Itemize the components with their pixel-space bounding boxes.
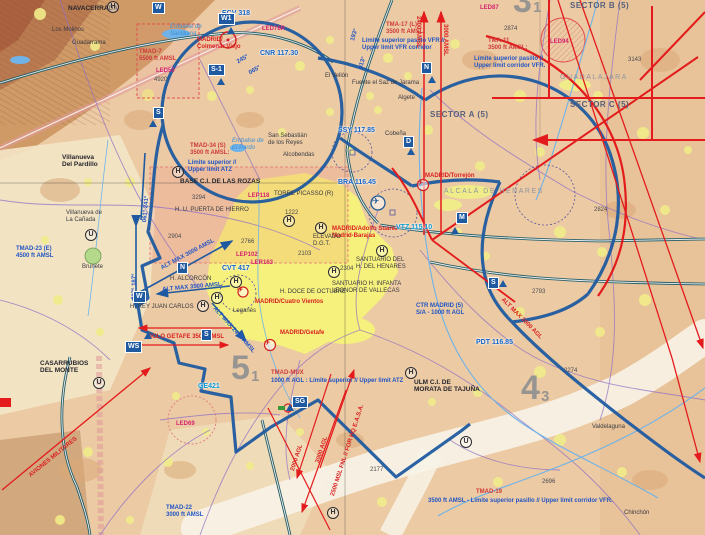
heliport-marker: H — [327, 507, 339, 519]
label-2400-amsl: 2400 AMSL — [414, 16, 421, 48]
label-solo-getafe: SOLO GETAFE 3500 AMSL — [148, 334, 224, 341]
label-tmad-mux-limits: 1000 ft AGL : Límite superior // Upper l… — [271, 378, 403, 385]
point-box-n-alcorcon: N — [177, 262, 188, 274]
label-elev-2696: 2696 — [542, 479, 555, 486]
label-aviones-militares: AVIONES MILITARES — [28, 436, 79, 479]
label-sector-b: SECTOR B (5) — [570, 2, 629, 11]
label-tma11: TMA-11 3500 ft AMSL: — [488, 38, 527, 51]
label-tmad-mux: TMAD-MUX — [271, 370, 304, 377]
point-box-w1: W1 — [218, 13, 235, 25]
heliport-marker: H — [197, 300, 209, 312]
label-leganes: Leganés — [233, 308, 256, 315]
label-led50: LED50 — [156, 68, 175, 75]
heliport-marker: H — [376, 245, 388, 257]
label-elev-3143: 3143 — [628, 57, 641, 64]
label-rey-juan-carlos: H. REY JUAN CARLOS — [130, 304, 194, 311]
label-el-vellon: El Vellón — [325, 73, 348, 80]
point-box-s1: S-1 — [208, 64, 225, 76]
label-casarrubios: CASARRUBIOS DEL MONTE — [40, 360, 88, 375]
label-algete: Algete — [398, 95, 415, 102]
label-ge421: GE421 — [198, 383, 220, 391]
point-box-m: M — [456, 212, 468, 224]
label-ctr-madrid: CTR MADRID (5) S/A - 1000 ft AGL — [416, 303, 464, 316]
label-elev-2824: 2824 — [594, 207, 607, 214]
label-tma11-limits: Límite superior pasillo // Upper limit c… — [474, 56, 545, 69]
label-torre-picasso: TORRE PICASSO (R) — [274, 191, 333, 198]
heliport-marker: H — [211, 292, 223, 304]
point-box-n-top: N — [421, 62, 432, 74]
label-vtz-freq: VTZ 115.10 — [396, 224, 432, 232]
label-tma17-limits: Límite superior pasillo VFR // Upper lim… — [362, 38, 445, 51]
chart-labels: NAVACERRADALos MolinosGuadarramaEmbalse … — [0, 0, 705, 535]
label-led78r: LED78R — [262, 26, 285, 33]
label-2500-msl: 2500 MSL FNL // FOR HQ E.A.S.A. — [330, 404, 366, 497]
label-santuario-henares: SANTUARIO DEL H. DEL HENARES — [356, 257, 406, 270]
label-barajas: MADRID/Adolfo Suárez Madrid-Barajas — [332, 226, 398, 239]
point-box-d: D — [403, 136, 414, 148]
vfr-point-triangle — [149, 120, 157, 127]
point-box-w-top: W — [152, 2, 165, 14]
vfr-point-triangle — [428, 76, 436, 83]
label-lep102: LEP102 — [236, 252, 258, 259]
vfr-point-triangle — [407, 148, 415, 155]
point-box-s-getafe: S — [201, 329, 212, 341]
point-box-s-east: S — [488, 277, 499, 289]
label-brg-245: 245° — [236, 54, 250, 66]
vfr-point-triangle — [144, 332, 152, 339]
vfr-point-triangle — [227, 27, 235, 34]
label-tmad23: TMAD-23 (E) 4500 ft AMSL — [16, 246, 53, 259]
vfr-point-triangle — [217, 78, 225, 85]
chart-number-5: 5 — [231, 349, 250, 387]
label-alcala: ALCALÁ DE HENARES — [444, 188, 544, 196]
vfr-point-triangle — [499, 280, 507, 287]
label-colmenar-viejo: MADRID/ Colmenar Viejo — [197, 37, 241, 50]
label-elev-2274: 2274 — [564, 368, 577, 375]
label-3000-agl: 3000 AGL — [315, 436, 330, 464]
label-vva-pardillo: Villanueva Del Pardillo — [62, 154, 98, 169]
label-chinchon: Chinchón — [624, 510, 649, 517]
label-alcobendas: Alcobendas — [283, 152, 314, 159]
label-elev-4920: 4920 — [154, 77, 167, 84]
ulm-marker: U — [93, 377, 105, 389]
point-box-s-west: S — [153, 107, 164, 119]
label-guadarrama: Guadarrama — [72, 40, 106, 47]
heliport-marker: H — [405, 367, 417, 379]
label-tmad19-limits: 3500 ft AMSL - Límite superior pasillo /… — [428, 498, 613, 505]
label-valdelaguna: Valdelaguna — [592, 424, 625, 431]
label-brg-013: 013° — [358, 56, 368, 70]
label-led94: LED94 — [550, 39, 569, 46]
ulm-marker: U — [85, 229, 97, 241]
label-embalse-santillana: Embalse de Santillana — [170, 24, 202, 37]
airport-icon-cuatro-vientos: ✈ — [237, 286, 244, 295]
label-sector-c: SECTOR C (5) — [570, 101, 629, 110]
label-tmad7: TMAD-7 5500 ft AMSL — [139, 49, 176, 62]
label-elev-2904: 2904 — [168, 234, 181, 241]
label-elev-2304: 2304 — [340, 266, 353, 273]
label-ssy-freq: SSY 117.85 — [338, 127, 375, 135]
label-led87: LED87 — [480, 5, 499, 12]
label-led69: LED69 — [176, 421, 195, 428]
airport-icon-barajas: ✈ — [372, 196, 380, 206]
label-torrejon: MADRID/Torrejón — [425, 173, 475, 180]
label-tmad34-limits: Límite superior // Upper limit ATZ — [188, 160, 236, 173]
label-elev-2793: 2793 — [532, 289, 545, 296]
label-doce-octubre: H. DOCE DE OCTUBRE — [280, 289, 346, 296]
point-box-sg: SG — [292, 396, 308, 408]
label-elevado-dgt: ELEVADO D.G.T. — [313, 234, 341, 247]
label-los-molinos: Los Molinos — [52, 27, 84, 34]
label-embalse-pardo: Embalse de El Pardo — [232, 138, 264, 151]
label-brunete: Brunete — [82, 264, 103, 271]
label-brg-065: 065° — [248, 65, 262, 77]
chart-number-4: 4 — [521, 369, 540, 407]
label-san-sebastian: San Sebastián de los Reyes — [268, 133, 307, 146]
point-box-ws: WS — [125, 341, 142, 353]
label-cvt-freq: CVT 417 — [222, 265, 250, 273]
chart-number-3: 3 — [513, 0, 532, 20]
vfr-aeronautical-chart-madrid: NAVACERRADALos MolinosGuadarramaEmbalse … — [0, 0, 705, 535]
airport-icon-getafe: ✈ — [264, 339, 271, 348]
label-bra-freq: BRA 116.45 — [338, 179, 376, 187]
label-elev-3294: 3294 — [192, 195, 205, 202]
label-guadalajara: GUADALAJARA — [560, 74, 628, 82]
label-elev-2103: 2103 — [298, 251, 311, 258]
label-2000-agl: 2000 AGL — [290, 444, 305, 472]
heliport-marker: H — [172, 166, 184, 178]
label-3000-amsl: 3000 AMSL — [441, 24, 448, 56]
label-brg-061-241: 061° 241° — [142, 196, 151, 223]
label-cuatro-vientos: MADRID/Cuatro Vientos — [255, 299, 323, 306]
label-brg-193: 193° — [350, 28, 360, 42]
label-pdt-freq: PDT 116.85 — [476, 339, 513, 347]
chart-number-5-sub: 1 — [251, 369, 259, 386]
label-fuente-saz: Fuente el Saz de Jarama — [352, 80, 419, 87]
label-cnr-freq: CNR 117.30 — [260, 50, 298, 58]
heliport-marker: H — [315, 222, 327, 234]
label-base-rozas: BASE C.I. DE LAS ROZAS — [180, 178, 260, 185]
heliport-marker: H — [107, 1, 119, 13]
chart-number-4-sub: 3 — [541, 389, 549, 406]
label-tmad22: TMAD-22 3000 ft AMSL — [166, 505, 203, 518]
label-elev-2766: 2766 — [241, 239, 254, 246]
point-box-w-alcorcon: W — [133, 291, 146, 303]
label-elev-2874: 2874 — [504, 26, 517, 33]
label-ler163: LER163 — [251, 260, 273, 267]
label-alt-max-1000: ALT MAX 1000 AGL — [499, 297, 543, 341]
ulm-marker: U — [460, 436, 472, 448]
label-getafe: MADRID/Getafe — [280, 330, 324, 337]
airport-icon-torrejon: ✈ — [417, 179, 424, 188]
label-h-alcorcon: H. ALCORCÓN — [170, 276, 211, 283]
vfr-point-triangle — [286, 404, 294, 411]
label-vva-canada: Villanueva de La Cañada — [66, 210, 102, 223]
heliport-marker: H — [328, 266, 340, 278]
chart-number-3-sub: 1 — [533, 0, 541, 17]
label-ulm-morata: ULM C.I. DE MORATA DE TAJUÑA — [414, 379, 480, 394]
label-lep118: LEP118 — [248, 193, 269, 200]
label-sector-a: SECTOR A (5) — [430, 111, 489, 120]
vfr-point-triangle — [451, 227, 459, 234]
label-tmad34: TMAD-34 (S) 3500 ft AMSL: — [190, 143, 229, 156]
label-puerta-hierro: H. U. PUERTA DE HIERRO — [175, 207, 249, 214]
label-tmad19: TMAD-19 — [476, 489, 502, 496]
label-elev-2177: 2177 — [370, 467, 383, 474]
heliport-marker: H — [283, 215, 295, 227]
